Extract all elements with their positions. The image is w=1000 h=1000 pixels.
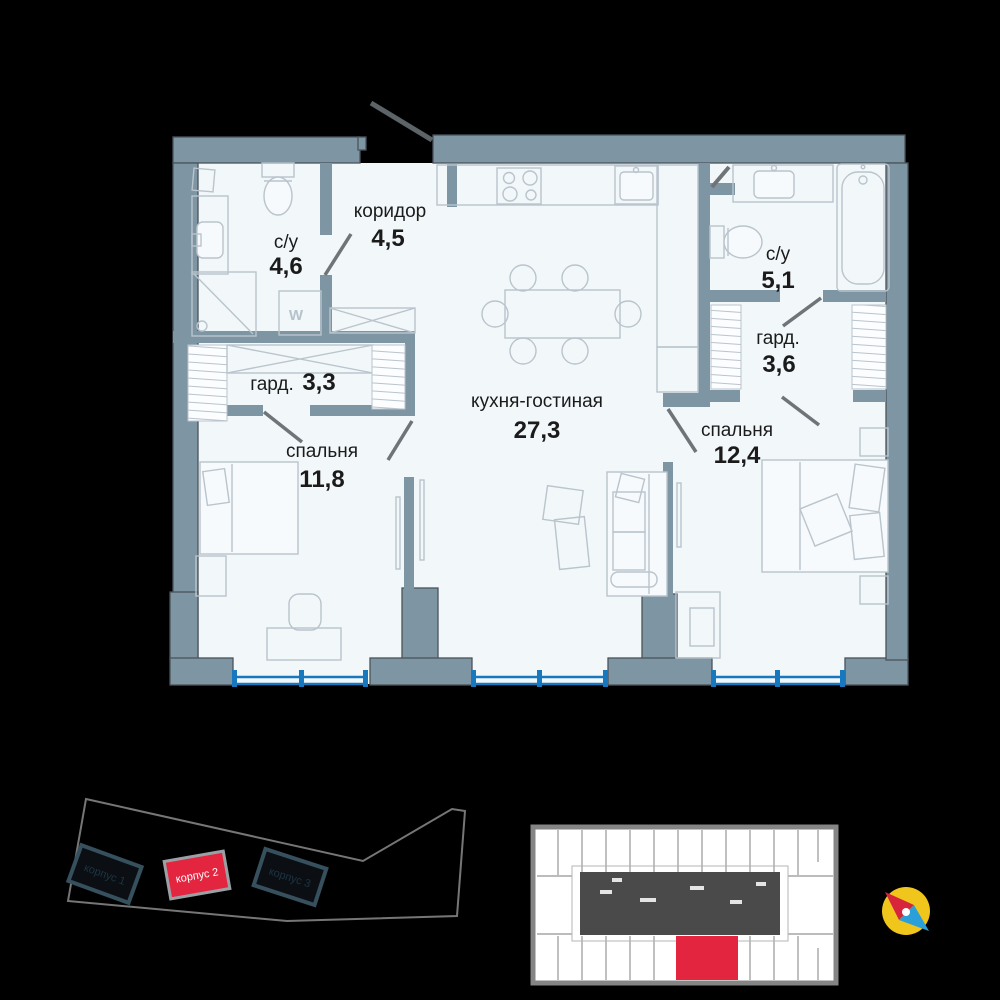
wardrobe2-right — [852, 305, 886, 389]
room-label-bathroom1: с/у — [274, 232, 299, 253]
building-2-selected[interactable]: корпус 2 — [164, 851, 230, 899]
room-area-kitchen: 27,3 — [514, 417, 561, 444]
room-area-bathroom1: 4,6 — [269, 253, 302, 280]
building-3[interactable]: корпус 3 — [254, 849, 327, 905]
bed-1 — [200, 462, 298, 554]
compass-pivot — [902, 908, 910, 916]
wardrobe1-left — [188, 345, 227, 421]
building-1[interactable]: корпус 1 — [68, 845, 141, 903]
sofa — [607, 472, 667, 596]
room-label-wardrobe2: гард. — [756, 328, 800, 349]
site-plan: корпус 1 корпус 2 корпус 3 — [68, 799, 465, 921]
plan-canvas: W — [0, 0, 1000, 1000]
bed-2 — [762, 460, 888, 572]
room-area-bathroom2: 5,1 — [761, 267, 794, 294]
room-label-bedroom1: спальня — [286, 441, 358, 462]
building-core — [580, 872, 780, 935]
selected-unit[interactable] — [676, 936, 738, 980]
room-area-corridor: 4,5 — [371, 225, 404, 252]
room-label-bathroom2: с/у — [766, 244, 791, 265]
entrance-door-leaf — [371, 103, 432, 140]
room-area-wardrobe2: 3,6 — [762, 351, 795, 378]
floor-overview — [533, 827, 836, 983]
room-area-wardrobe1: 3,3 — [302, 369, 335, 396]
room-label-corridor: коридор — [354, 201, 427, 222]
wardrobe1-right — [372, 345, 405, 409]
unit-page-canvas: W — [0, 0, 1000, 1000]
room-area-bedroom2: 12,4 — [714, 442, 761, 469]
compass-icon — [882, 887, 930, 935]
room-area-bedroom1: 11,8 — [299, 466, 344, 493]
room-label-kitchen: кухня-гостиная — [471, 391, 603, 412]
room-label-wardrobe1: гард. — [250, 374, 294, 395]
room-label-bedroom2: спальня — [701, 420, 773, 441]
apartment-floor-plan: W — [170, 103, 908, 687]
wardrobe2-left — [711, 305, 741, 389]
washer-label: W — [289, 307, 304, 324]
